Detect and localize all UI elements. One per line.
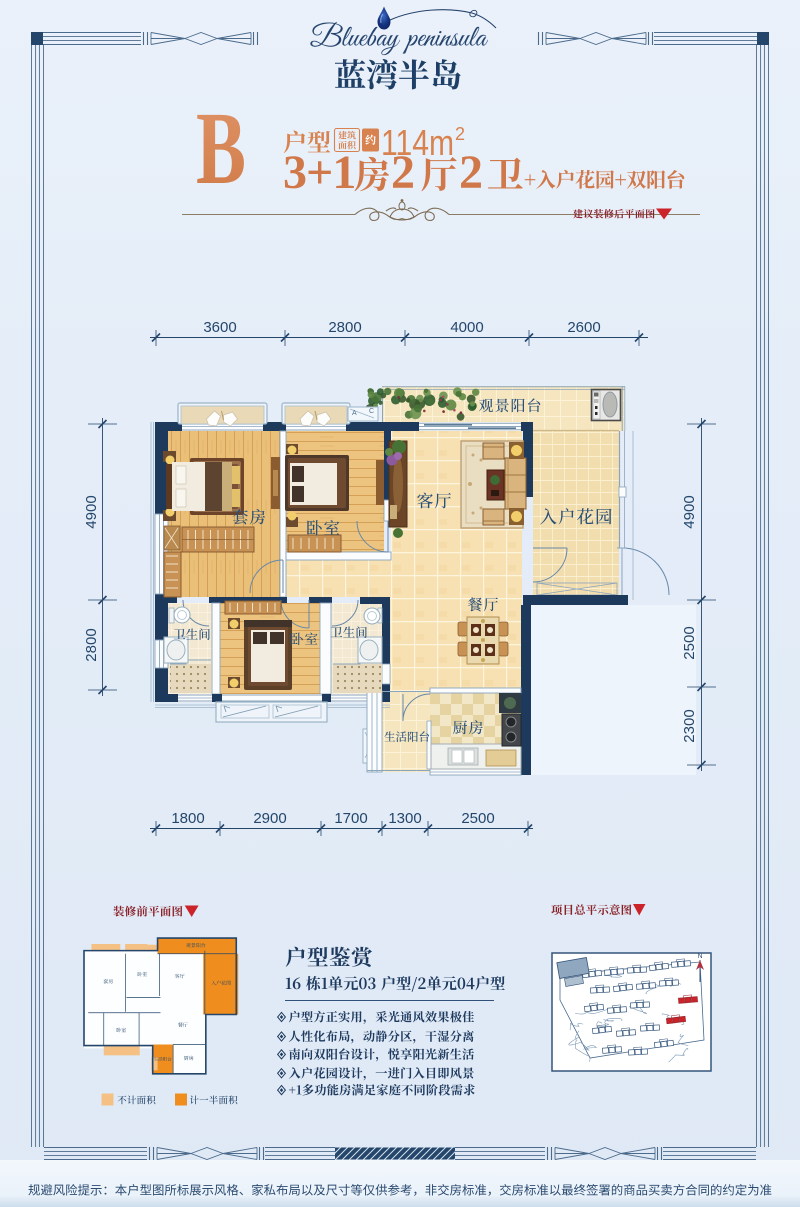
svg-text:2500: 2500 [461,810,494,827]
svg-text:3+1: 3+1 [283,146,355,199]
svg-text:N: N [697,953,702,960]
svg-text:2900: 2900 [253,810,286,827]
svg-text:2: 2 [459,146,483,199]
svg-text:1700: 1700 [334,810,367,827]
svg-text:2600: 2600 [567,319,600,336]
svg-text:B: B [196,91,246,206]
svg-text:1300: 1300 [388,810,421,827]
svg-text:1800: 1800 [171,810,204,827]
svg-text:2500: 2500 [681,626,698,659]
svg-text:2800: 2800 [83,628,100,661]
svg-text:2800: 2800 [328,319,361,336]
svg-text:3600: 3600 [203,319,236,336]
svg-text:4000: 4000 [450,319,483,336]
svg-text:2: 2 [455,124,465,144]
svg-text:2300: 2300 [681,709,698,742]
svg-text:2: 2 [391,146,415,199]
svg-text:4900: 4900 [83,495,100,528]
svg-text:A: A [352,410,357,417]
svg-text:C: C [369,408,374,415]
svg-text:4900: 4900 [681,495,698,528]
